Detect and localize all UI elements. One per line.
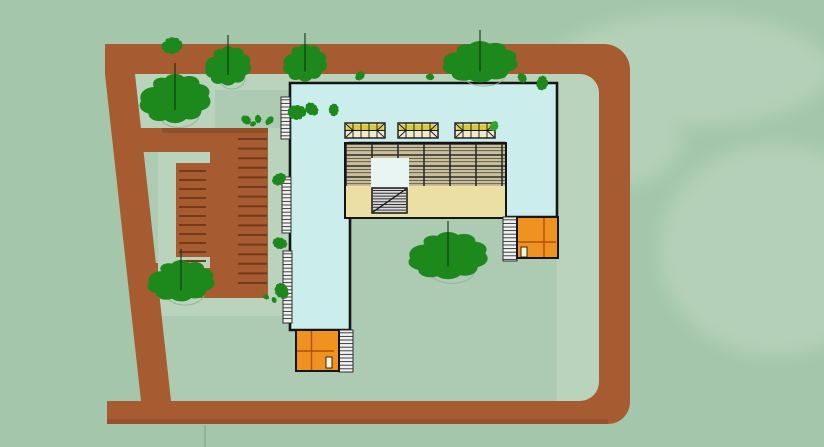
- walkway-east: [557, 90, 599, 401]
- parking-entrance-north: [140, 128, 162, 152]
- roof-deck-east: [517, 217, 558, 258]
- roof-deck-west: [296, 330, 339, 371]
- roof-access-door: [521, 247, 527, 257]
- parking-top-shadow: [162, 128, 268, 133]
- louver-grid-roof: [345, 143, 506, 186]
- siteplan-3d-viewport[interactable]: [0, 0, 824, 447]
- hatch-strip: [282, 177, 291, 233]
- skylights: [345, 123, 495, 138]
- roof-access-door: [326, 357, 332, 368]
- skylight: [398, 123, 438, 138]
- walkway-parking-south: [145, 298, 288, 316]
- hatch-strip: [503, 217, 517, 261]
- atrium-lower-roof: [345, 143, 506, 218]
- skylight: [455, 123, 495, 138]
- skylight: [345, 123, 385, 138]
- hatch-strip: [339, 330, 353, 372]
- main-stairs: [372, 188, 407, 213]
- hatch-strip: [281, 97, 290, 139]
- road-edge-shadow: [107, 419, 608, 424]
- atrium-void: [371, 158, 409, 189]
- siteplan-canvas: [0, 0, 824, 447]
